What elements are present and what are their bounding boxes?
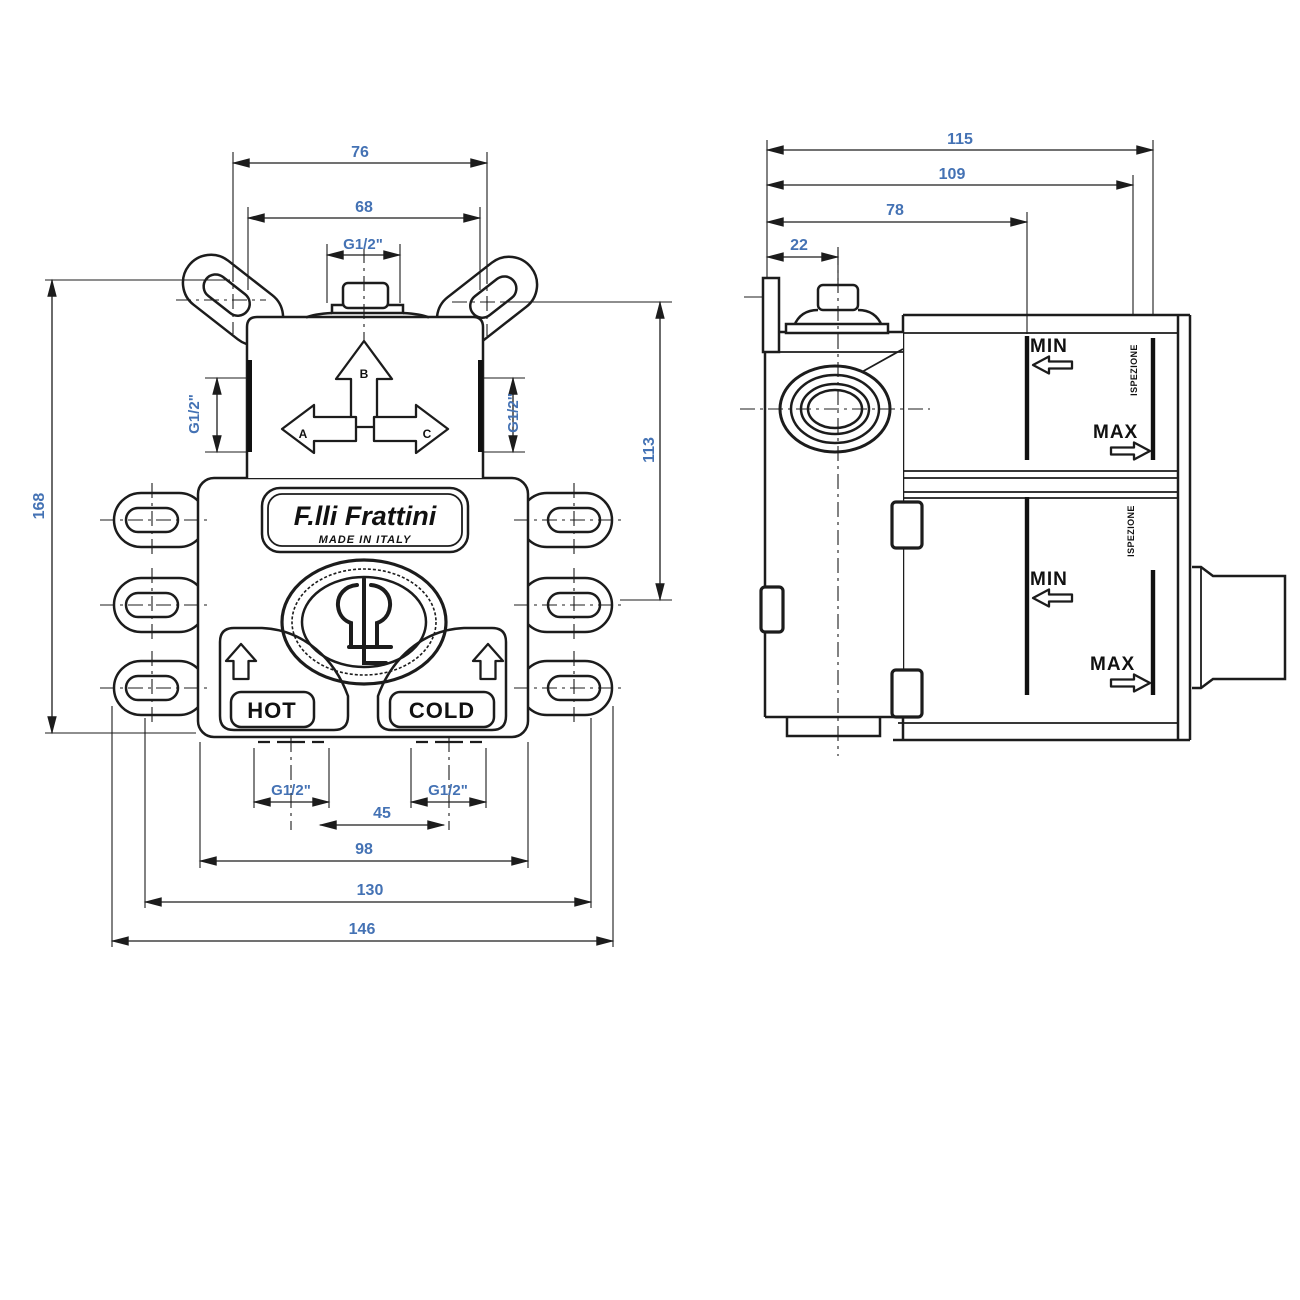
min-label-upper: MIN xyxy=(1030,336,1068,357)
dim-130: 130 xyxy=(357,882,384,899)
dim-98: 98 xyxy=(355,841,373,858)
dim-right-port: G1/2" xyxy=(505,393,522,433)
brand-badge: F.lli Frattini MADE IN ITALY xyxy=(262,488,468,552)
dim-115: 115 xyxy=(947,131,973,148)
max-label-upper: MAX xyxy=(1093,422,1138,443)
front-view: B A C F.lli Frattini MADE IN ITALY xyxy=(31,144,672,947)
drawing-sheet: B A C F.lli Frattini MADE IN ITALY xyxy=(0,0,1300,1300)
made-in-italy-text: MADE IN ITALY xyxy=(319,534,412,546)
technical-drawing: B A C F.lli Frattini MADE IN ITALY xyxy=(0,0,1300,1300)
dim-cold-port: G1/2" xyxy=(428,782,468,799)
hot-label: HOT xyxy=(247,698,296,723)
top-port-stub xyxy=(306,283,429,318)
dim-109: 109 xyxy=(939,166,966,183)
side-view: MIN MAX ISPEZIONE MIN MAX ISPEZIONE xyxy=(740,131,1285,756)
dim-left-port: G1/2" xyxy=(186,394,203,434)
wall-text-upper: ISPEZIONE xyxy=(1129,344,1139,396)
dim-hot-port: G1/2" xyxy=(271,782,311,799)
port-a-label: A xyxy=(299,427,308,441)
max-label-lower: MAX xyxy=(1090,654,1135,675)
back-plate xyxy=(744,278,779,352)
port-b-label: B xyxy=(360,367,369,381)
dim-168: 168 xyxy=(31,493,48,520)
dim-top-port: G1/2" xyxy=(343,236,383,253)
wall-text-lower: ISPEZIONE xyxy=(1126,505,1136,557)
dim-78: 78 xyxy=(886,202,904,219)
side-top-port xyxy=(786,285,888,333)
side-knob xyxy=(1192,567,1285,688)
min-label-lower: MIN xyxy=(1030,569,1068,590)
dim-45: 45 xyxy=(373,805,391,822)
valve-block-side xyxy=(765,332,903,736)
logo-medallion xyxy=(282,560,446,684)
brand-text: F.lli Frattini xyxy=(294,501,437,531)
dim-76: 76 xyxy=(351,144,369,161)
dim-22: 22 xyxy=(790,237,808,254)
dim-146: 146 xyxy=(349,921,376,938)
dim-68: 68 xyxy=(355,199,373,216)
port-c-label: C xyxy=(423,427,432,441)
cold-label: COLD xyxy=(409,698,475,723)
dim-113: 113 xyxy=(641,437,658,463)
